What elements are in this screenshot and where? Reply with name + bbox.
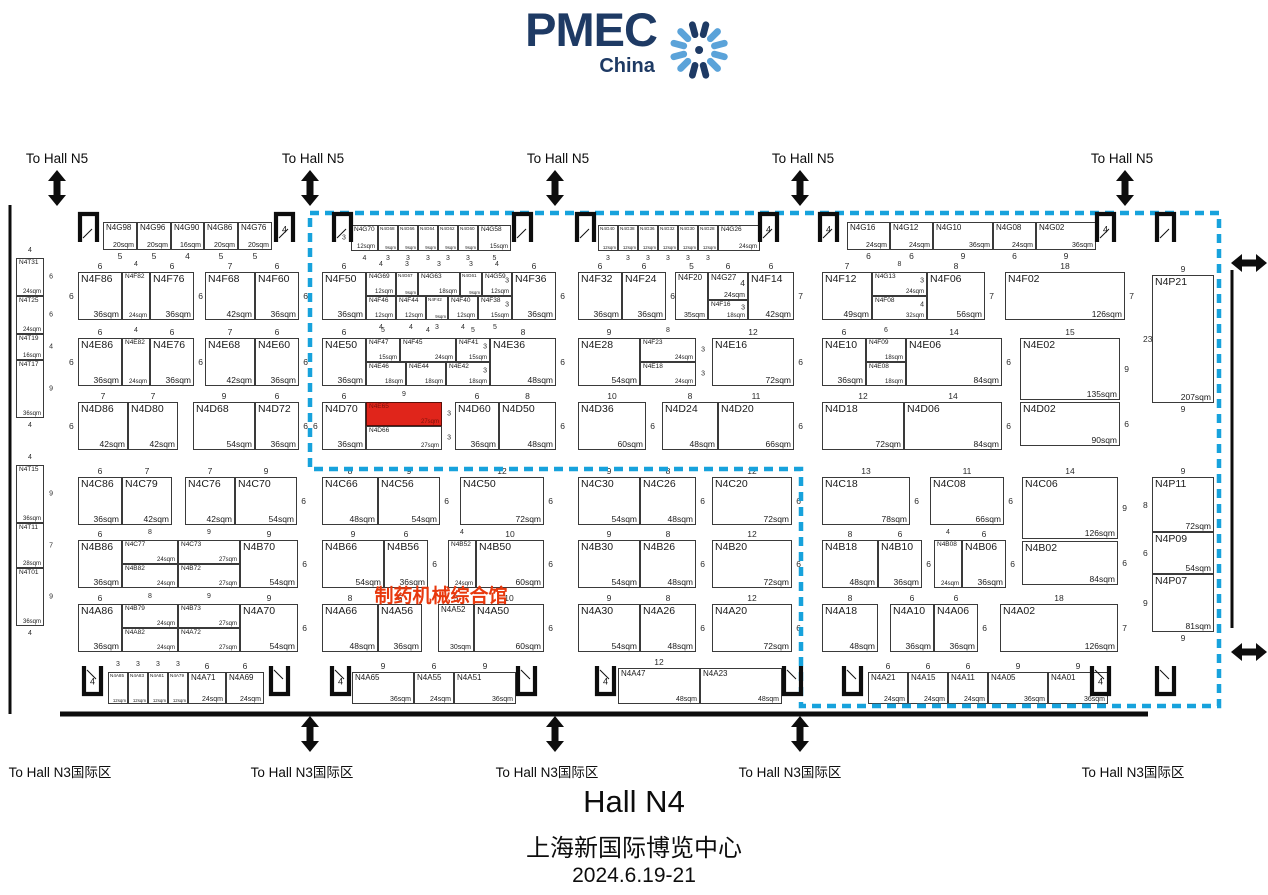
booth-id: N4B30 [581,541,613,553]
booth-N4A06[interactable]: N4A0636sqm66 [934,604,978,652]
booth-area: 48sqm [849,641,875,651]
dimension-label: 6 [475,391,480,401]
booth-N4G08[interactable]: N4G0824sqm6 [993,222,1036,250]
hall-link-label: To Hall N3国际区 [739,761,842,781]
booth-N4F32[interactable]: N4F3236sqm6 [578,272,622,320]
booth-N4A86[interactable]: N4A8636sqm6 [78,604,122,652]
booth-area: 24sqm [23,289,41,295]
booth-N4F76[interactable]: N4F7636sqm66 [150,272,194,320]
dimension-label: 6 [1143,548,1148,558]
booth-N4C73[interactable]: N4C7327sqm9 [178,540,240,564]
booth-N4F82[interactable]: N4F8224sqm4 [122,272,150,320]
booth-id: N4G27 [711,273,736,282]
booth-N4F36[interactable]: N4F3636sqm66 [512,272,556,320]
booth-N4T17[interactable]: N4T1736sqm49 [16,360,44,418]
booth-N4F41[interactable]: N4F4115sqm53 [456,338,490,362]
booth-id: N4D70 [325,403,358,415]
dimension-label: 18 [1054,593,1063,603]
booth-id: N4D72 [258,403,291,415]
dimension-label: 4 [49,344,53,351]
hall-link-label: To Hall N5 [1091,151,1153,166]
booth-N4A11[interactable]: N4A1124sqm6 [948,672,988,704]
booth-id: N4F42 [428,297,442,302]
booth-id: N4C26 [643,478,676,490]
booth-N4E42[interactable]: N4E4218sqm3 [446,362,490,386]
dimension-label: 9 [49,491,53,498]
dimension-label: 6 [798,357,803,367]
booth-N4C79[interactable]: N4C7942sqm7 [122,477,172,525]
booth-N4A81[interactable]: N4A8112sqm3 [148,672,168,704]
booth-id: N4G67 [398,273,413,278]
booth-N4G32[interactable]: N4G3212sqm3 [658,225,678,251]
booth-N4G26[interactable]: N4G2624sqm [718,225,760,251]
booth-N4A26[interactable]: N4A2648sqm86 [640,604,696,652]
booth-N4A18[interactable]: N4A1848sqm8 [822,604,878,652]
booth-N4E10[interactable]: N4E1036sqm6 [822,338,866,386]
dimension-label: 7 [798,291,803,301]
booth-N4G90[interactable]: N4G9016sqm4 [171,222,204,250]
booth-id: N4B10 [881,541,913,553]
booth-N4F42[interactable]: N4F429sqm3 [426,296,448,320]
booth-N4C56[interactable]: N4C5654sqm96 [378,477,440,525]
booth-N4C77[interactable]: N4C7724sqm8 [122,540,178,564]
booth-area: 15sqm [469,355,487,361]
booth-N4G98[interactable]: N4G9820sqm5 [103,222,137,250]
booth-id: N4E08 [869,363,889,370]
dimension-label: 5 [381,327,385,334]
booth-N4F47[interactable]: N4F4715sqm5 [366,338,400,362]
booth-area: 36sqm [93,309,119,319]
booth-N4A05[interactable]: N4A0536sqm9 [988,672,1048,704]
booth-area: 20sqm [147,242,168,249]
booth-id: N4B26 [643,541,675,553]
booth-N4A23[interactable]: N4A2348sqm [700,668,782,704]
dimension-label: 12 [858,391,867,401]
booth-N4C08[interactable]: N4C0866sqm116 [930,477,1004,525]
booth-N4G66[interactable]: N4G669sqm3 [398,225,418,251]
booth-N4G16[interactable]: N4G1624sqm6 [847,222,890,250]
dimension-label: 9 [1143,598,1148,608]
booth-N4F14[interactable]: N4F1442sqm67 [748,272,794,320]
booth-N4G13[interactable]: N4G1324sqm83 [872,272,927,296]
booth-N4D66[interactable]: N4D6627sqm3 [366,426,442,450]
booth-N4D36[interactable]: N4D3660sqm106 [578,402,646,450]
booth-area: 36sqm [977,577,1003,587]
booth-N4D06[interactable]: N4D0684sqm146 [904,402,1002,450]
booth-N4A01[interactable]: N4A0136sqm9 [1048,672,1108,704]
booth-area: 20sqm [248,242,269,249]
booth-id: N4F46 [369,297,389,304]
booth-id: N4D50 [502,403,535,415]
booth-N4D24[interactable]: N4D2448sqm8 [662,402,718,450]
dimension-label: 6 [532,261,537,271]
booth-N4E60[interactable]: N4E6036sqm66 [255,338,299,386]
dimension-label: 6 [303,421,308,431]
booth-N4A21[interactable]: N4A2124sqm6 [868,672,908,704]
booth-id: N4P21 [1155,276,1187,288]
dimension-label: 9 [961,251,966,261]
booth-id: N4F82 [125,273,145,280]
booth-N4A52[interactable]: N4A5230sqm5 [438,604,474,652]
dimension-label: 6 [926,559,931,569]
booth-N4B26[interactable]: N4B2648sqm86 [640,540,696,588]
booth-N4G60[interactable]: N4G609sqm3 [458,225,478,251]
booth-N4C66[interactable]: N4C6648sqm8 [322,477,378,525]
booth-area: 24sqm [909,242,930,249]
booth-N4B20[interactable]: N4B2072sqm126 [712,540,792,588]
booth-area: 54sqm [226,439,252,449]
booth-id: N4G28 [700,226,715,231]
dimension-label: 6 [982,623,987,633]
booth-N4B30[interactable]: N4B3054sqm9 [578,540,640,588]
booth-N4D70[interactable]: N4D7036sqm66 [322,402,366,450]
booth-N4E76[interactable]: N4E7636sqm66 [150,338,194,386]
booth-N4G59[interactable]: N4G5912sqm43 [482,272,512,296]
booth-area: 36sqm [905,641,931,651]
booth-N4F46[interactable]: N4F4612sqm4 [366,296,396,320]
dimension-label: 6 [909,251,914,261]
booth-id: N4A06 [937,605,969,617]
booth-N4B10[interactable]: N4B1036sqm66 [878,540,922,588]
booth-N4G96[interactable]: N4G9620sqm5 [137,222,171,250]
booth-N4T01[interactable]: N4T0136sqm49 [16,568,44,626]
booth-N4F12[interactable]: N4F1249sqm7 [822,272,872,320]
booth-N4T19[interactable]: N4T1916sqm4 [16,334,44,360]
booth-N4E28[interactable]: N4E2854sqm9 [578,338,640,386]
booth-N4D02[interactable]: N4D0290sqm6 [1020,402,1120,446]
booth-N4A30[interactable]: N4A3054sqm9 [578,604,640,652]
booth-area: 48sqm [527,439,553,449]
booth-id: N4T25 [19,297,39,304]
booth-area: 36sqm [949,641,975,651]
dimension-label: 4 [495,261,499,268]
booth-N4B72[interactable]: N4B7227sqm [178,564,240,588]
exhibition-floor-plan: PMEC China N4G9820sqm5N4G9620sqm5N4G9016… [0,0,1268,895]
booth-id: N4E18 [643,363,663,370]
booth-N4E65[interactable]: N4E6527sqm93 [366,402,442,426]
booth-N4D80[interactable]: N4D8042sqm7 [128,402,178,450]
booth-N4F02[interactable]: N4F02126sqm187 [1005,272,1125,320]
hall-title: Hall N4 [583,784,685,820]
booth-N4E86[interactable]: N4E8636sqm66 [78,338,122,386]
booth-id: N4P09 [1155,533,1187,545]
booth-N4E18[interactable]: N4E1824sqm3 [640,362,696,386]
dimension-label: 4 [920,302,924,309]
booth-N4C76[interactable]: N4C7642sqm7 [185,477,235,525]
booth-N4G62[interactable]: N4G629sqm3 [438,225,458,251]
booth-area: 36sqm [637,309,663,319]
booth-N4A10[interactable]: N4A1036sqm6 [890,604,934,652]
booth-N4G58[interactable]: N4G5815sqm5 [478,225,511,251]
booth-N4E06[interactable]: N4E0684sqm146 [906,338,1002,386]
booth-area: 48sqm [349,641,375,651]
booth-area: 35sqm [684,312,705,319]
logo-burst-icon [659,4,743,96]
booth-area: 207sqm [1181,392,1211,402]
booth-N4B70[interactable]: N4B7054sqm96 [240,540,298,588]
dimension-label: 6 [914,496,919,506]
booth-area: 36sqm [470,439,496,449]
booth-N4P11[interactable]: N4P1172sqm98 [1152,477,1214,532]
booth-N4C20[interactable]: N4C2072sqm126 [712,477,792,525]
booth-id: N4A70 [243,605,275,617]
dimension-label: 12 [497,466,506,476]
booth-N4A71[interactable]: N4A7124sqm6 [188,672,226,704]
booth-id: N4T01 [19,569,39,576]
booth-N4D20[interactable]: N4D2066sqm116 [718,402,794,450]
booth-N4G76[interactable]: N4G7620sqm5 [238,222,272,250]
booth-area: 42sqm [149,439,175,449]
booth-N4A02[interactable]: N4A02126sqm187 [1000,604,1118,652]
booth-area: 12sqm [683,245,696,250]
dimension-label: 9 [222,391,227,401]
booth-id: N4T17 [19,361,39,368]
booth-N4T11[interactable]: N4T1128sqm7 [16,523,44,568]
booth-N4C86[interactable]: N4C8636sqm6 [78,477,122,525]
pmec-logo: PMEC China [525,6,743,96]
booth-N4G12[interactable]: N4G1224sqm6 [890,222,933,250]
booth-N4F86[interactable]: N4F8636sqm66 [78,272,122,320]
booth-N4A72[interactable]: N4A7227sqm [178,628,240,652]
booth-id: N4B50 [479,541,511,553]
booth-N4D86[interactable]: N4D8642sqm76 [78,402,128,450]
booth-N4B82[interactable]: N4B8224sqm [122,564,178,588]
booth-N4P07[interactable]: N4P0781sqm99 [1152,574,1214,632]
logo-text-block: PMEC China [525,6,657,78]
booth-N4G10[interactable]: N4G1036sqm9 [933,222,993,250]
booth-id: N4E60 [258,339,290,351]
booth-N4E46[interactable]: N4E4618sqm [366,362,406,386]
booth-N4C30[interactable]: N4C3054sqm9 [578,477,640,525]
dimension-label: 4 [28,630,32,637]
booth-N4A15[interactable]: N4A1524sqm6 [908,672,948,704]
booth-area: 36sqm [969,242,990,249]
booth-id: N4A85 [110,673,124,678]
booth-N4C70[interactable]: N4C7054sqm96 [235,477,297,525]
booth-id: N4G10 [936,223,961,232]
booth-N4F45[interactable]: N4F4524sqm4 [400,338,456,362]
booth-area: 9sqm [425,245,436,250]
booth-N4F09[interactable]: N4F0918sqm6 [866,338,906,362]
booth-area: 9sqm [469,290,480,295]
booth-N4D18[interactable]: N4D1872sqm12 [822,402,904,450]
booth-N4P21[interactable]: N4P21207sqm9923 [1152,275,1214,403]
dimension-label: 6 [884,327,888,334]
booth-N4T31[interactable]: N4T3124sqm46 [16,258,44,296]
booth-N4F20[interactable]: N4F2035sqm5 [675,272,708,320]
booth-area: 48sqm [689,439,715,449]
booth-area: 12sqm [623,245,636,250]
booth-N4C50[interactable]: N4C5072sqm126 [460,477,544,525]
booth-area: 24sqm [240,696,261,703]
booth-N4B06[interactable]: N4B0636sqm66 [962,540,1006,588]
booth-N4T15[interactable]: N4T1536sqm49 [16,465,44,523]
booth-area: 36sqm [93,375,119,385]
booth-area: 135sqm [1087,389,1117,399]
booth-id: N4G40 [600,226,615,231]
booth-area: 42sqm [226,375,252,385]
booth-N4G86[interactable]: N4G8620sqm5 [204,222,238,250]
booth-N4E36[interactable]: N4E3648sqm86 [490,338,556,386]
booth-N4C18[interactable]: N4C1878sqm136 [822,477,910,525]
dimension-label: 6 [982,529,987,539]
booth-layer: N4G9820sqm5N4G9620sqm5N4G9016sqm4N4G8620… [0,0,1268,895]
booth-N4D72[interactable]: N4D7236sqm66 [255,402,299,450]
booth-area: 36sqm [393,641,419,651]
booth-N4G68[interactable]: N4G689sqm3 [378,225,398,251]
booth-area: 36sqm [165,375,191,385]
dimension-label: 8 [521,327,526,337]
booth-N4G70[interactable]: N4G7012sqm43 [351,225,378,251]
booth-area: 36sqm [593,309,619,319]
booth-N4G61[interactable]: N4G619sqm3 [460,272,482,296]
booth-N4G64[interactable]: N4G649sqm3 [418,225,438,251]
booth-N4F50[interactable]: N4F5036sqm6 [322,272,366,320]
booth-N4A70[interactable]: N4A7054sqm96 [240,604,298,652]
booth-N4B18[interactable]: N4B1848sqm8 [822,540,878,588]
booth-N4F24[interactable]: N4F2436sqm66 [622,272,666,320]
booth-N4F44[interactable]: N4F4412sqm4 [396,296,426,320]
logo-china-text: China [599,55,655,78]
booth-id: N4F38 [481,297,501,304]
dimension-label: 3 [701,371,705,378]
dimension-label: 8 [954,261,959,271]
booth-N4E50[interactable]: N4E5036sqm6 [322,338,366,386]
dimension-label: 6 [560,357,565,367]
dimension-label: 6 [69,357,74,367]
booth-area: 36sqm [337,309,363,319]
booth-N4B73[interactable]: N4B7327sqm9 [178,604,240,628]
booth-N4A69[interactable]: N4A6924sqm6 [226,672,264,704]
booth-id: N4B66 [325,541,357,553]
booth-N4A51[interactable]: N4A5136sqm9 [454,672,516,704]
booth-area: 12sqm [457,313,475,319]
booth-N4D60[interactable]: N4D6036sqm6 [455,402,499,450]
booth-N4A66[interactable]: N4A6648sqm8 [322,604,378,652]
booth-N4A20[interactable]: N4A2072sqm126 [712,604,792,652]
booth-id: N4G08 [996,223,1021,232]
booth-N4A56[interactable]: N4A5636sqm6 [378,604,422,652]
booth-N4E44[interactable]: N4E4418sqm [406,362,446,386]
dimension-label: 4 [134,327,138,334]
booth-area: 9sqm [405,290,416,295]
booth-N4T25[interactable]: N4T2524sqm6 [16,296,44,334]
dimension-label: 3 [447,411,451,418]
dimension-label: 9 [49,594,53,601]
hall-link-label: To Hall N5 [26,151,88,166]
dimension-label: 7 [208,466,213,476]
dimension-label: 5 [689,261,694,271]
dimension-label: 8 [666,593,671,603]
booth-N4B02[interactable]: N4B0284sqm6 [1022,541,1118,585]
booth-N4G30[interactable]: N4G3012sqm3 [678,225,698,251]
booth-N4A65[interactable]: N4A6536sqm9 [352,672,414,704]
booth-area: 24sqm [964,696,985,703]
booth-N4E68[interactable]: N4E6842sqm7 [205,338,255,386]
dimension-label: 7 [145,466,150,476]
booth-area: 12sqm [113,698,126,703]
booth-id: N4C20 [715,478,748,490]
dimension-label: 7 [101,391,106,401]
booth-N4F23[interactable]: N4F2324sqm83 [640,338,696,362]
booth-area: 56sqm [956,309,982,319]
booth-N4D68[interactable]: N4D6854sqm9 [193,402,255,450]
booth-N4B79[interactable]: N4B7924sqm8 [122,604,178,628]
booth-area: 24sqm [157,645,175,651]
booth-N4P09[interactable]: N4P0954sqm6 [1152,532,1214,574]
dimension-label: 3 [342,235,346,242]
dimension-label: 9 [1064,251,1069,261]
booth-id: N4E36 [493,339,525,351]
booth-N4G28[interactable]: N4G2812sqm3 [698,225,718,251]
booth-N4G67[interactable]: N4G679sqm3 [396,272,418,296]
booth-N4G27[interactable]: N4G2724sqm64 [708,272,748,300]
booth-id: N4G16 [850,223,875,232]
booth-N4F06[interactable]: N4F0656sqm87 [927,272,985,320]
booth-N4A55[interactable]: N4A5524sqm6 [414,672,454,704]
dimension-label: 12 [747,593,756,603]
booth-N4E08[interactable]: N4E0818sqm [866,362,906,386]
booth-area: 12sqm [375,313,393,319]
booth-N4G38[interactable]: N4G3812sqm3 [618,225,638,251]
booth-area: 24sqm [202,696,223,703]
booth-area: 54sqm [269,577,295,587]
booth-N4A82[interactable]: N4A8224sqm [122,628,178,652]
booth-N4A83[interactable]: N4A8312sqm3 [128,672,148,704]
booth-area: 27sqm [421,419,439,425]
booth-id: N4A69 [229,673,253,682]
booth-id: N4A05 [991,673,1015,682]
booth-N4A79[interactable]: N4A7912sqm3 [168,672,188,704]
booth-N4G40[interactable]: N4G4012sqm3 [598,225,618,251]
booth-N4G36[interactable]: N4G3612sqm3 [638,225,658,251]
booth-id: N4G69 [369,273,390,280]
dimension-label: 6 [650,421,655,431]
booth-N4G69[interactable]: N4G6912sqm4 [366,272,396,296]
booth-N4C26[interactable]: N4C2648sqm86 [640,477,696,525]
booth-N4F38[interactable]: N4F3815sqm53 [478,296,512,320]
booth-N4E16[interactable]: N4E1672sqm126 [712,338,794,386]
booth-id: N4G12 [893,223,918,232]
booth-N4G63[interactable]: N4G6318sqm3 [418,272,460,296]
booth-N4G02[interactable]: N4G0236sqm9 [1036,222,1096,250]
booth-N4B86[interactable]: N4B8636sqm6 [78,540,122,588]
dimension-label: 3 [483,344,487,351]
booth-N4B08[interactable]: N4B0824sqm4 [934,540,962,588]
booth-id: N4F16 [711,301,731,308]
booth-N4F08[interactable]: N4F0832sqm4 [872,296,927,320]
booth-id: N4A02 [1003,605,1035,617]
booth-N4A50[interactable]: N4A5060sqm106 [474,604,544,652]
booth-N4A47[interactable]: N4A4748sqm12 [618,668,700,704]
booth-id: N4E82 [125,339,145,346]
booth-N4C06[interactable]: N4C06126sqm149 [1022,477,1118,539]
booth-id: N4F06 [930,273,962,285]
booth-id: N4F36 [515,273,547,285]
booth-N4F68[interactable]: N4F6842sqm7 [205,272,255,320]
booth-N4E82[interactable]: N4E8224sqm4 [122,338,150,386]
booth-N4F60[interactable]: N4F6036sqm66 [255,272,299,320]
booth-id: N4G68 [380,226,395,231]
booth-N4F16[interactable]: N4F1618sqm3 [708,300,748,320]
dimension-label: 6 [1008,496,1013,506]
booth-area: 12sqm [603,245,616,250]
booth-N4A85[interactable]: N4A8512sqm3 [108,672,128,704]
booth-N4E02[interactable]: N4E02135sqm159 [1020,338,1120,400]
booth-N4F40[interactable]: N4F4012sqm4 [448,296,478,320]
booth-N4D50[interactable]: N4D5048sqm86 [499,402,556,450]
booth-area: 18sqm [469,379,487,385]
